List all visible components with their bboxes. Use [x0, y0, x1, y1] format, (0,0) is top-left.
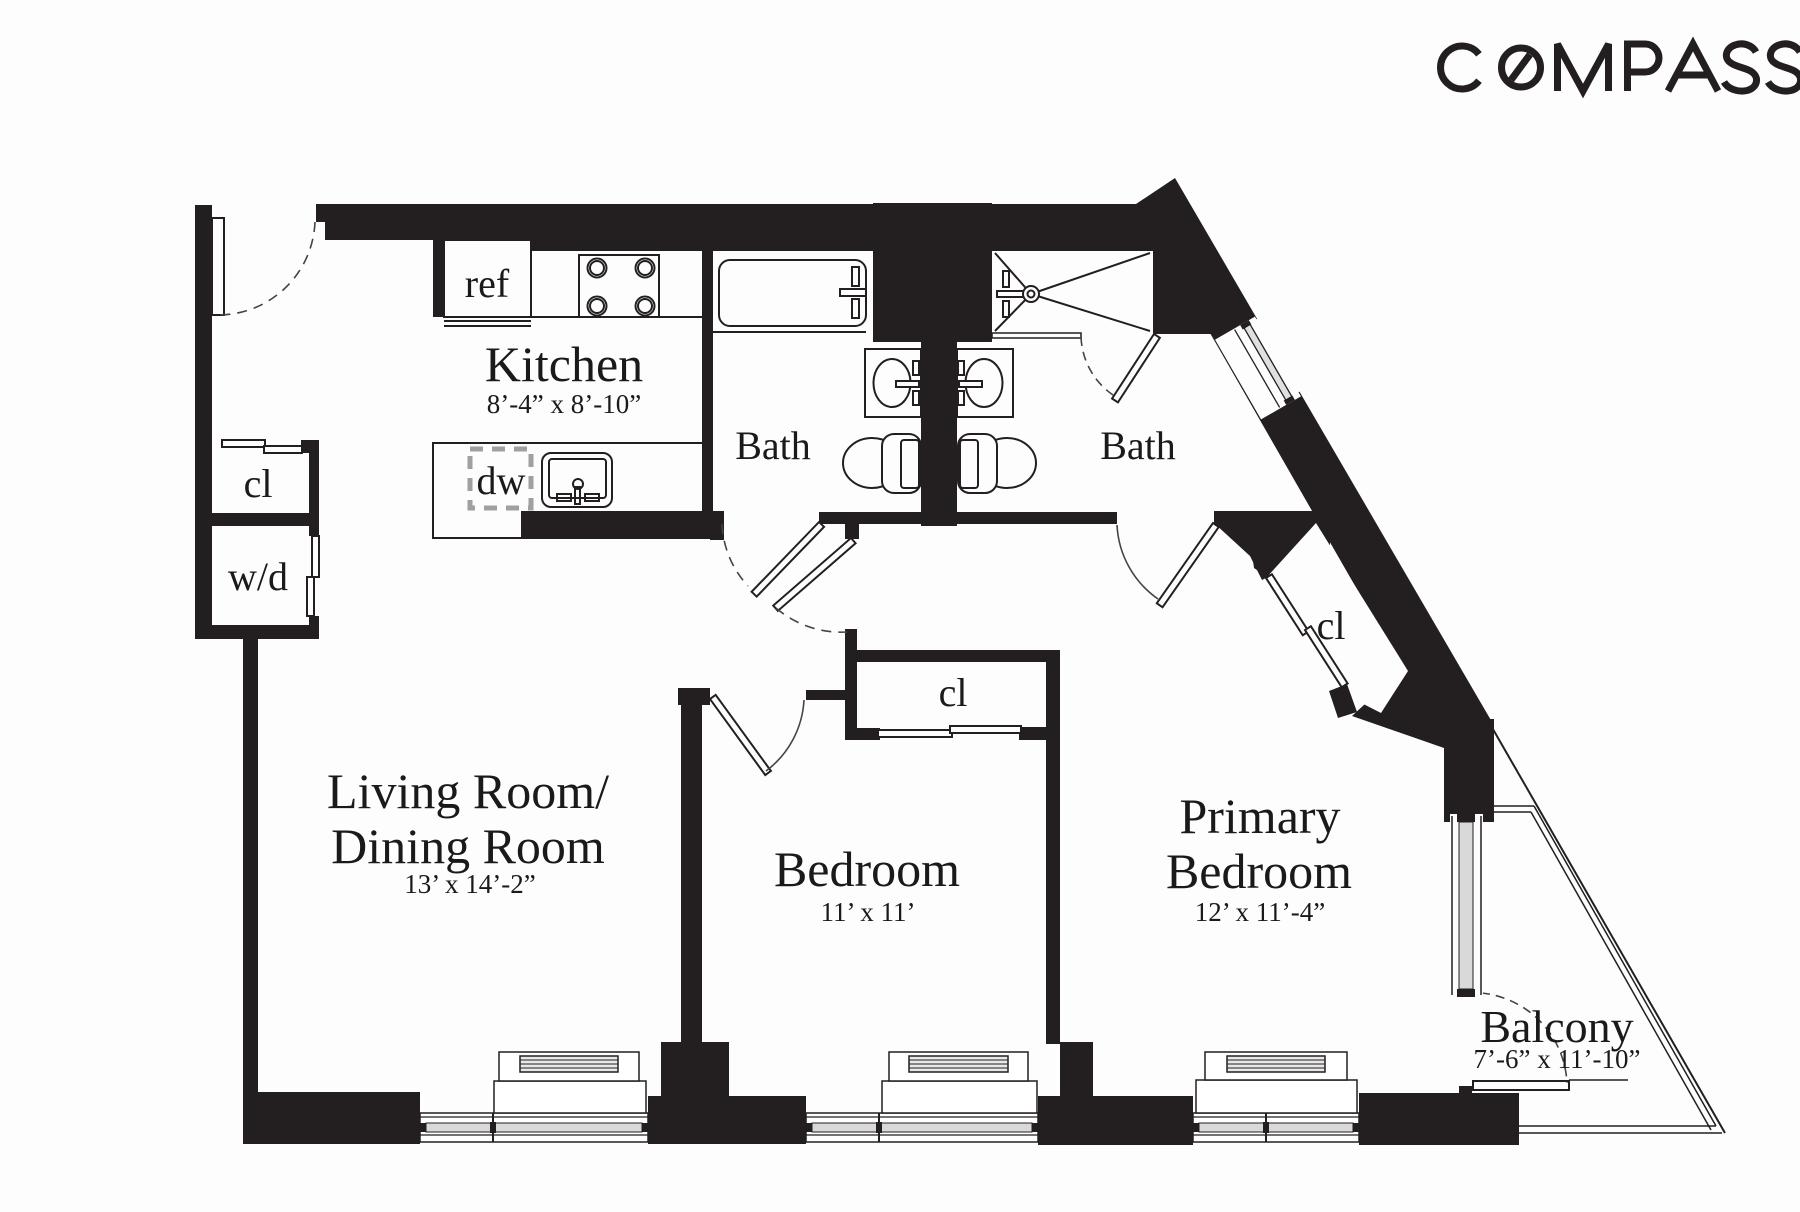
svg-text:Living Room/: Living Room/ [327, 763, 609, 819]
svg-text:Bedroom: Bedroom [1166, 843, 1352, 899]
svg-text:8’-4” x 8’-10”: 8’-4” x 8’-10” [487, 389, 641, 419]
svg-text:12’ x 11’-4”: 12’ x 11’-4” [1195, 897, 1325, 927]
svg-text:Primary: Primary [1179, 788, 1340, 844]
svg-text:w/d: w/d [228, 554, 288, 599]
svg-text:ref: ref [465, 261, 510, 306]
svg-text:Bath: Bath [735, 423, 811, 468]
svg-text:13’ x 14’-2”: 13’ x 14’-2” [404, 869, 535, 899]
svg-text:7’-6” x 11’-10”: 7’-6” x 11’-10” [1474, 1044, 1641, 1074]
svg-text:Bedroom: Bedroom [774, 841, 960, 897]
svg-text:cl: cl [244, 461, 273, 506]
svg-text:Dining Room: Dining Room [331, 818, 605, 874]
svg-text:cl: cl [1317, 603, 1346, 648]
svg-text:11’ x 11’: 11’ x 11’ [821, 897, 916, 927]
svg-text:Bath: Bath [1100, 423, 1176, 468]
svg-text:Kitchen: Kitchen [485, 336, 643, 392]
svg-text:cl: cl [939, 670, 968, 715]
svg-text:dw: dw [477, 458, 526, 503]
